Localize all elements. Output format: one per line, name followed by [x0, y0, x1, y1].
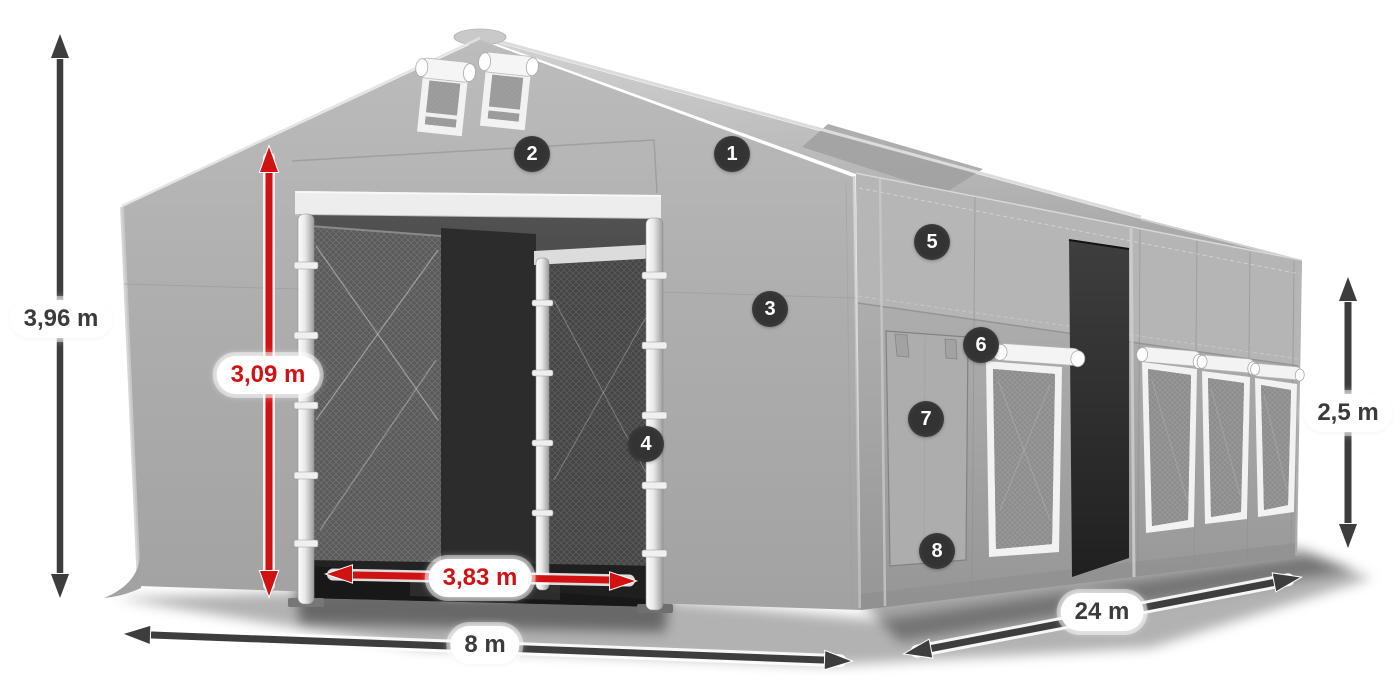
feature-marker-7: 7: [908, 401, 944, 437]
feature-marker-2: 2: [514, 136, 550, 172]
fabric-skirt: [104, 556, 141, 598]
feature-marker-1: 1: [714, 136, 750, 172]
feature-marker-6: 6: [963, 327, 999, 363]
dimension-label-front-width: 8 m: [450, 626, 519, 664]
dimension-label-length: 24 m: [1061, 593, 1144, 631]
dimension-label-total-height: 3,96 m: [10, 300, 113, 338]
feature-marker-4: 4: [628, 426, 664, 462]
dimension-label-side-height: 2,5 m: [1303, 394, 1392, 432]
dimension-label-door-width: 3,83 m: [429, 559, 532, 597]
feature-marker-3: 3: [752, 291, 788, 327]
product-diagram: 3,96 m 3,09 m 3,83 m 8 m 24 m 2,5 m 1 2 …: [0, 0, 1400, 700]
dimension-label-door-height: 3,09 m: [217, 356, 320, 394]
feature-marker-8: 8: [919, 533, 955, 569]
middle-passage-opening: [1069, 240, 1129, 577]
tent-illustration: [0, 0, 1400, 700]
side-door-panel: [886, 331, 968, 566]
inner-door-pole: [536, 258, 549, 590]
front-opening: [303, 215, 662, 607]
front-lintel-beam: [295, 191, 661, 219]
feature-marker-5: 5: [914, 224, 950, 260]
